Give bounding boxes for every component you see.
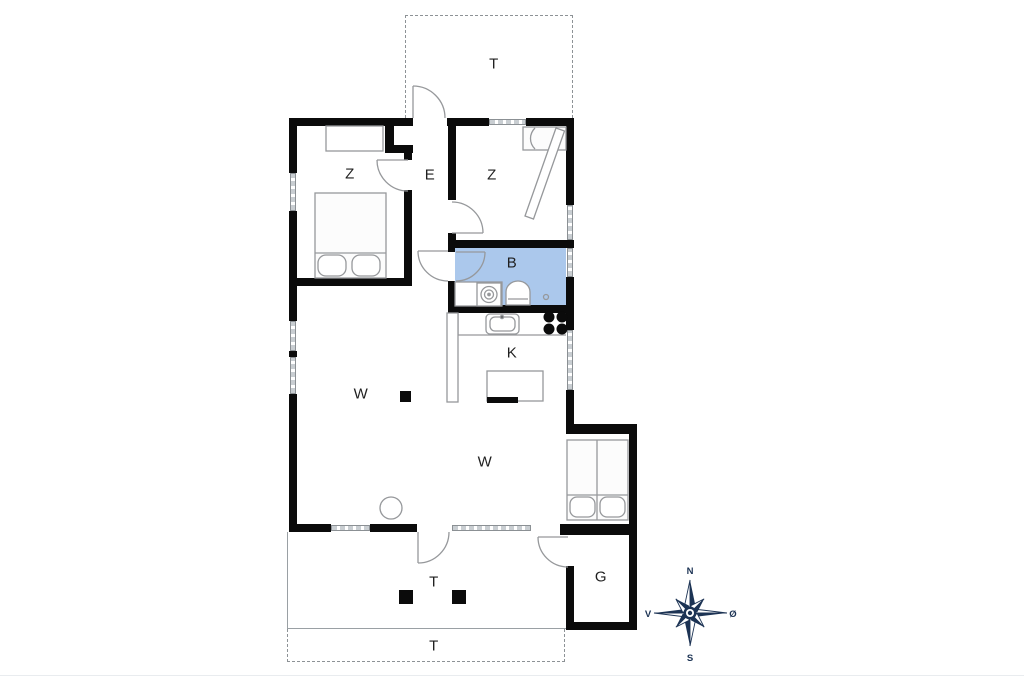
compass-label-north: N (687, 566, 694, 577)
door-arc (456, 252, 485, 281)
room-label-living-lower: W (478, 454, 493, 471)
door-arc (452, 202, 483, 233)
pillow (570, 497, 595, 517)
page-edge-line (0, 675, 1024, 676)
door-arc (418, 251, 448, 281)
room-label-bedroom-right: Z (487, 167, 497, 184)
compass-rose: N S V Ø (642, 561, 738, 665)
burner (544, 324, 555, 335)
room-label-terrace-open: T (429, 638, 439, 655)
door-arc (413, 86, 445, 118)
floorplan-canvas: T Z E Z B K W W T G T (0, 0, 1024, 682)
wardrobe (326, 126, 383, 151)
compass-label-west: V (645, 609, 652, 620)
burner (544, 312, 555, 323)
room-label-bathroom: B (507, 255, 518, 272)
floor-drain (544, 295, 549, 300)
compass-label-south: S (687, 653, 693, 664)
round-table (380, 497, 402, 519)
washer-dot (488, 293, 490, 295)
room-label-bedroom-left: Z (345, 166, 355, 183)
pillow (600, 497, 625, 517)
kitchen-island (487, 371, 543, 401)
room-label-terrace-covered: T (429, 574, 439, 591)
burner (557, 312, 568, 323)
tall-cabinet (447, 313, 458, 402)
toilet (506, 281, 530, 305)
compass-label-east: Ø (729, 609, 736, 620)
compass-hub-dot (688, 611, 692, 615)
room-label-entry: E (425, 167, 436, 184)
pillow (318, 255, 346, 276)
burner (557, 324, 568, 335)
room-label-kitchen: K (507, 345, 518, 362)
room-label-living-upper: W (354, 386, 369, 403)
door-arc (418, 532, 449, 563)
pillow (352, 255, 380, 276)
lineart-layer (0, 0, 1024, 682)
faucet-dot (500, 315, 503, 318)
door-arc (377, 160, 408, 191)
island-bench (487, 397, 518, 403)
door-arc (538, 537, 568, 567)
room-label-outbuilding: G (595, 569, 607, 586)
room-label-terrace-top: T (489, 56, 499, 73)
